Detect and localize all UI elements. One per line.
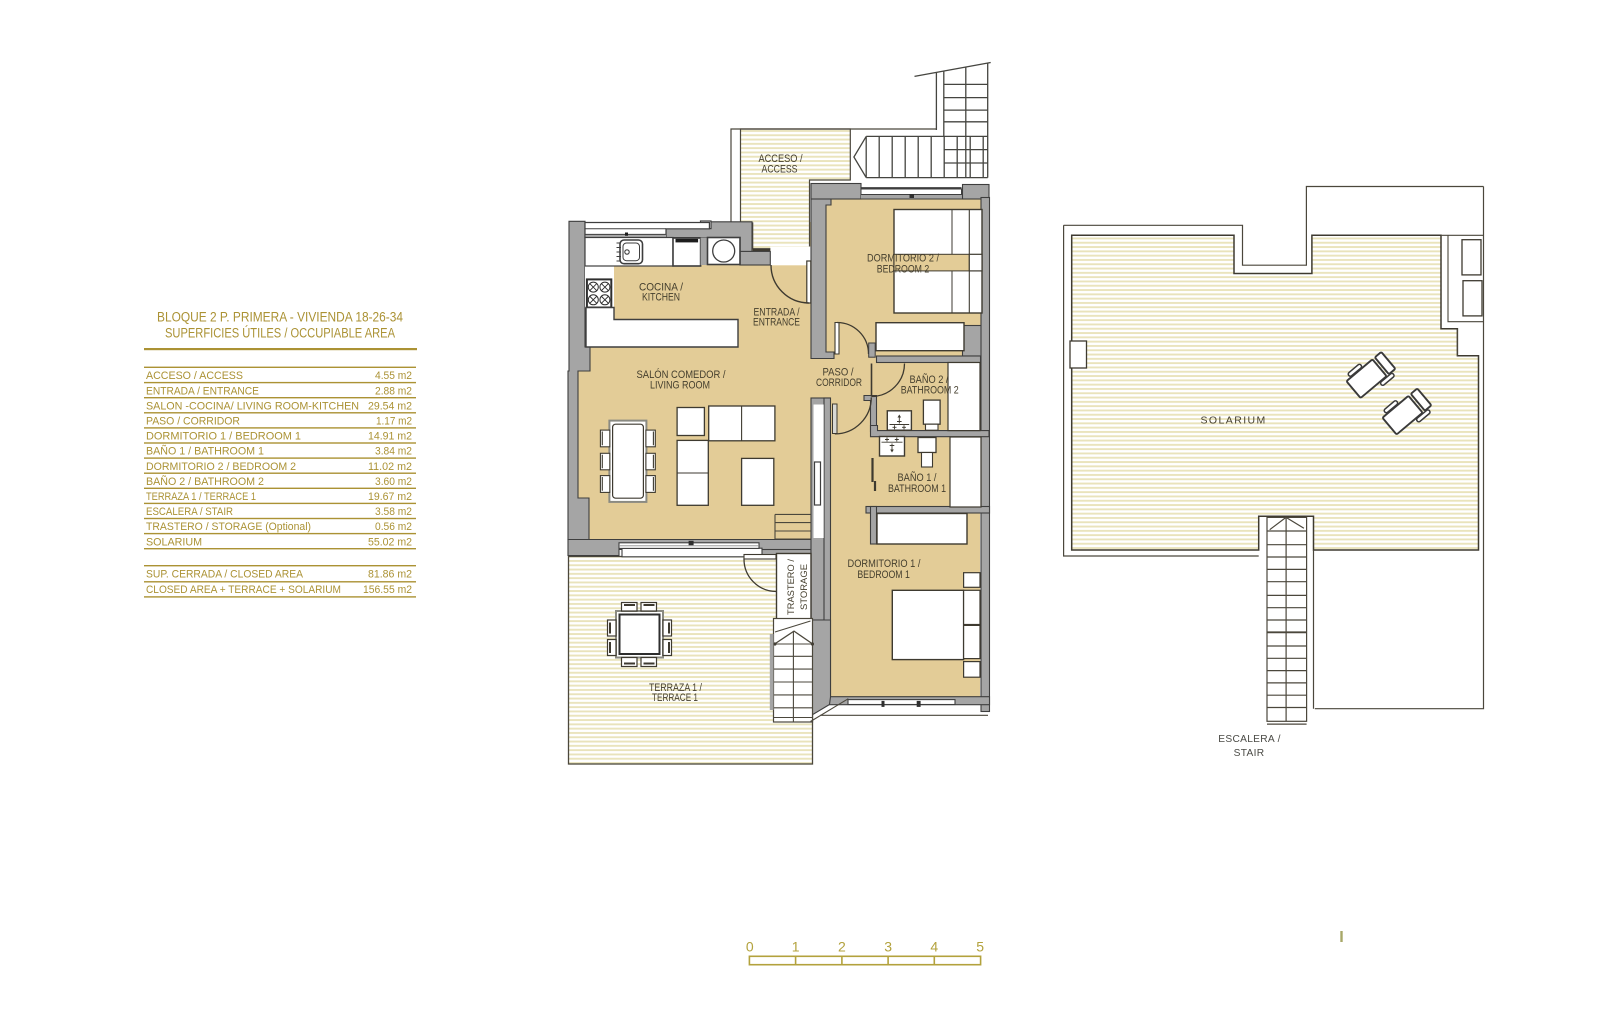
svg-text:BEDROOM 2: BEDROOM 2	[877, 263, 930, 275]
svg-text:SUP. CERRADA / CLOSED AREA: SUP. CERRADA / CLOSED AREA	[146, 569, 303, 581]
svg-text:LIVING ROOM: LIVING ROOM	[650, 379, 710, 391]
svg-text:BAÑO 1 / BATHROOM 1: BAÑO 1 / BATHROOM 1	[146, 445, 264, 458]
svg-text:ACCESS: ACCESS	[762, 163, 798, 175]
svg-text:ESCALERA / STAIR: ESCALERA / STAIR	[146, 506, 233, 518]
svg-text:BATHROOM 2: BATHROOM 2	[901, 384, 959, 396]
svg-text:3.58 m2: 3.58 m2	[375, 506, 412, 518]
svg-text:BATHROOM 1: BATHROOM 1	[888, 483, 946, 495]
svg-text:ACCESO / ACCESS: ACCESO / ACCESS	[146, 370, 243, 382]
svg-text:ENTRANCE: ENTRANCE	[753, 317, 800, 329]
svg-text:DORMITORIO 2 / BEDROOM 2: DORMITORIO 2 / BEDROOM 2	[146, 461, 296, 473]
svg-text:CLOSED AREA + TERRACE + SOLARI: CLOSED AREA + TERRACE + SOLARIUM	[146, 584, 341, 596]
svg-text:STORAGE: STORAGE	[799, 564, 809, 610]
svg-text:TRASTERO / STORAGE (Optional): TRASTERO / STORAGE (Optional)	[146, 521, 311, 533]
svg-text:STAIR: STAIR	[1234, 748, 1265, 759]
svg-text:SOLARIUM: SOLARIUM	[146, 536, 202, 548]
svg-text:PASO / CORRIDOR: PASO / CORRIDOR	[146, 416, 240, 428]
svg-text:SUPERFICIES ÚTILES / OCCUPIABL: SUPERFICIES ÚTILES / OCCUPIABLE AREA	[165, 326, 395, 341]
svg-text:DORMITORIO 1 / BEDROOM 1: DORMITORIO 1 / BEDROOM 1	[146, 431, 301, 443]
svg-text:TERRAZA 1 / TERRACE 1: TERRAZA 1 / TERRACE 1	[146, 491, 256, 503]
svg-text:ESCALERA /: ESCALERA /	[1218, 734, 1280, 745]
svg-text:2: 2	[838, 939, 846, 955]
svg-text:3.60 m2: 3.60 m2	[375, 476, 412, 488]
svg-text:BEDROOM 1: BEDROOM 1	[857, 569, 910, 581]
svg-text:BAÑO 2 / BATHROOM 2: BAÑO 2 / BATHROOM 2	[146, 475, 264, 488]
svg-text:5: 5	[976, 939, 984, 955]
svg-text:0.56 m2: 0.56 m2	[375, 521, 412, 533]
svg-text:TERRACE 1: TERRACE 1	[652, 692, 698, 704]
svg-text:4.55 m2: 4.55 m2	[375, 370, 412, 382]
svg-text:1.17 m2: 1.17 m2	[376, 416, 412, 428]
svg-text:1: 1	[792, 939, 800, 955]
svg-text:KITCHEN: KITCHEN	[642, 292, 680, 304]
svg-text:19.67 m2: 19.67 m2	[368, 491, 412, 503]
svg-text:4: 4	[930, 939, 938, 955]
svg-text:CORRIDOR: CORRIDOR	[816, 377, 862, 389]
svg-text:BLOQUE 2 P. PRIMERA - VIVIEND: BLOQUE 2 P. PRIMERA - VIVIENDA 18-26-34	[157, 310, 403, 325]
svg-text:55.02 m2: 55.02 m2	[368, 536, 412, 548]
svg-text:SOLARIUM: SOLARIUM	[1201, 415, 1268, 427]
svg-text:TRASTERO /: TRASTERO /	[786, 558, 796, 615]
svg-text:SALON -COCINA/ LIVING ROOM-KIT: SALON -COCINA/ LIVING ROOM-KITCHEN	[146, 400, 359, 412]
svg-text:0: 0	[746, 939, 754, 955]
svg-text:3: 3	[884, 939, 892, 955]
svg-text:11.02 m2: 11.02 m2	[368, 461, 412, 473]
svg-text:14.91 m2: 14.91 m2	[368, 431, 412, 443]
svg-text:ENTRADA / ENTRANCE: ENTRADA / ENTRANCE	[146, 385, 259, 397]
svg-text:3.84 m2: 3.84 m2	[375, 446, 412, 458]
svg-text:2.88 m2: 2.88 m2	[375, 385, 412, 397]
svg-text:81.86 m2: 81.86 m2	[368, 569, 412, 581]
svg-text:156.55 m2: 156.55 m2	[363, 584, 412, 596]
svg-text:29.54 m2: 29.54 m2	[368, 400, 412, 412]
